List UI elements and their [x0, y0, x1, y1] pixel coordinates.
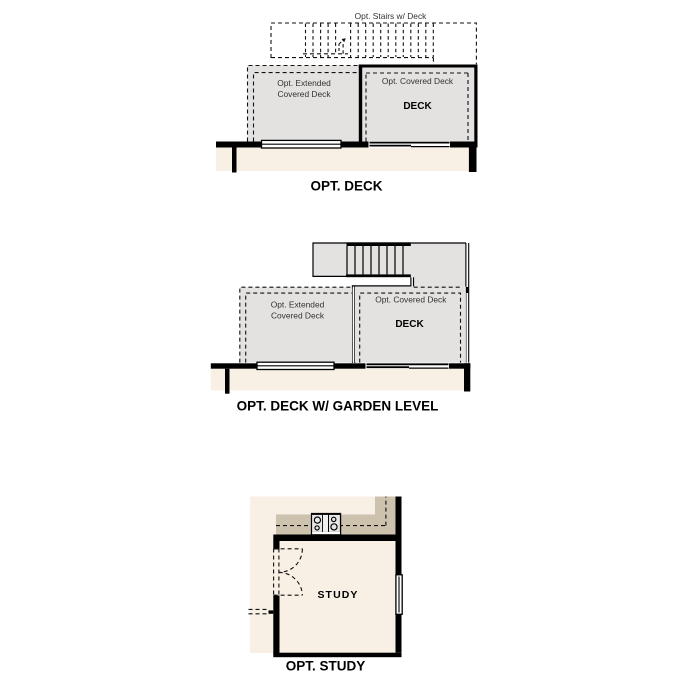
- svg-text:Opt. Stairs w/ Deck: Opt. Stairs w/ Deck: [355, 11, 427, 21]
- svg-text:DECK: DECK: [395, 319, 424, 330]
- svg-text:OPT. DECK: OPT. DECK: [310, 179, 382, 194]
- svg-text:Opt. Extended: Opt. Extended: [277, 78, 331, 88]
- svg-text:OPT. DECK W/ GARDEN LEVEL: OPT. DECK W/ GARDEN LEVEL: [237, 399, 439, 414]
- svg-text:OPT. STUDY: OPT. STUDY: [286, 659, 366, 674]
- svg-text:Covered Deck: Covered Deck: [277, 89, 331, 99]
- svg-text:Covered Deck: Covered Deck: [271, 311, 325, 321]
- svg-text:Opt. Covered Deck: Opt. Covered Deck: [375, 295, 447, 305]
- svg-text:Opt. Covered Deck: Opt. Covered Deck: [382, 76, 454, 86]
- svg-text:DECK: DECK: [403, 101, 432, 112]
- svg-text:STUDY: STUDY: [317, 589, 358, 601]
- svg-text:Opt. Extended: Opt. Extended: [271, 300, 325, 310]
